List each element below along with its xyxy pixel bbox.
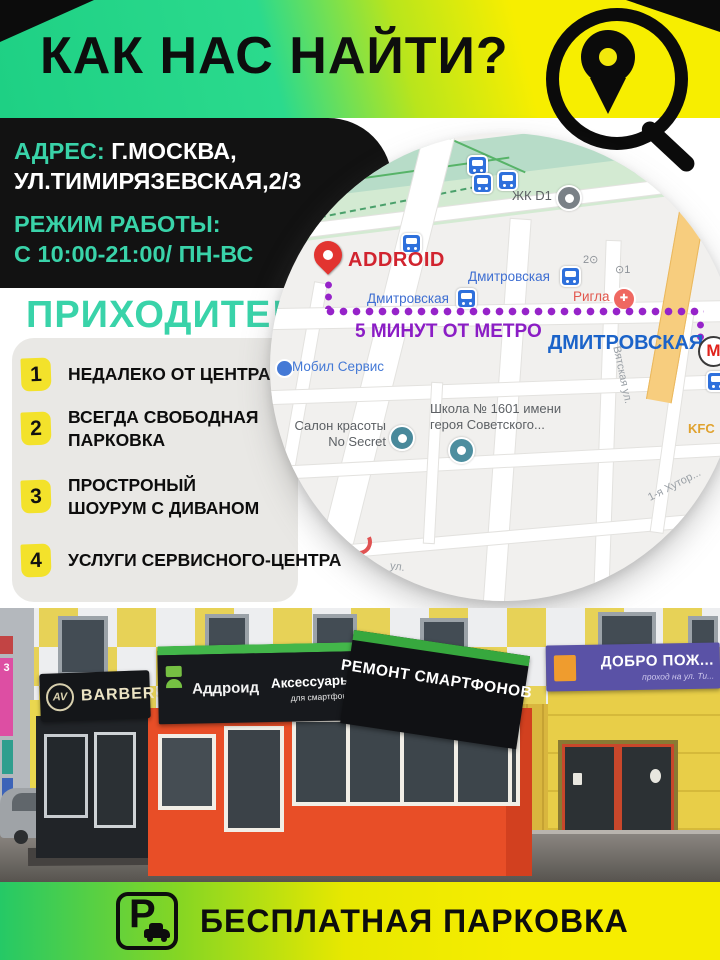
neighbor-sign: 3 — [0, 658, 13, 736]
benefit-item-1: 1 НЕДАЛЕКО ОТ ЦЕНТРА — [21, 358, 270, 391]
store-door — [224, 726, 284, 832]
benefit-number-badge: 3 — [20, 480, 51, 514]
benefit-item-2: 2 ВСЕГДА СВОБОДНАЯ ПАРКОВКА — [21, 406, 258, 452]
benefit-text: НЕДАЛЕКО ОТ ЦЕНТРА — [68, 363, 270, 386]
salon-label-line1: Салон красоты — [288, 418, 386, 433]
pharmacy-label: Ригла — [573, 289, 610, 304]
barbers-sign: AV BARBERS — [39, 670, 151, 722]
rail-station-label: Дмитровская — [367, 291, 449, 306]
street-label-khutor: 1-я Хутор... — [646, 467, 703, 504]
benefits-panel: 1 НЕДАЛЕКО ОТ ЦЕНТРА 2 ВСЕГДА СВОБОДНАЯ … — [12, 338, 298, 602]
benefit-text: ПРОСТРОНЫЙ ШОУРУМ С ДИВАНОМ — [68, 474, 259, 520]
bus-stop-icon — [472, 173, 493, 194]
benefit-number-badge: 2 — [20, 412, 51, 446]
school-label-line2: героя Советского... — [430, 417, 545, 432]
salon-label-line2: No Secret — [288, 434, 386, 449]
route-dots — [324, 307, 704, 316]
rail-station-label: Дмитровская — [468, 269, 550, 284]
metro-exit-1: ⊙1 — [615, 263, 630, 276]
footer-strip: P БЕСПЛАТНАЯ ПАРКОВКА — [0, 882, 720, 960]
neighbor-sign — [2, 740, 13, 774]
welcome-sign-text: ДОБРО ПОЖ... — [601, 651, 714, 670]
map-label-zhk: ЖК D1 — [512, 188, 552, 203]
store-window — [158, 734, 216, 810]
barbers-sign-text: BARBERS — [81, 684, 168, 705]
repair-sign-text: РЕМОНТ СМАРТФОНОВ — [340, 657, 533, 703]
train-station-icon — [560, 266, 581, 287]
building-poi-icon — [556, 185, 582, 211]
storefront-photo: 3 AV BARBERS Адд — [0, 608, 720, 882]
metro-station-name: ДМИТРОВСКАЯ — [548, 332, 703, 355]
benefit-number-badge: 4 — [20, 543, 51, 577]
kfc-label: KFC — [688, 421, 715, 436]
route-note: 5 МИНУТ ОТ МЕТРО — [355, 321, 542, 343]
barbers-storefront — [36, 716, 158, 858]
location-pin-tail — [590, 78, 626, 114]
map-circle: ЖК D1 2⊙ ⊙1 Дмитровская Дмитровская Ригл… — [270, 133, 720, 601]
barbers-door — [94, 732, 136, 828]
flyer-page: КАК НАС НАЙТИ? АДРЕС: Г.МОСКВА, УЛ.ТИМИР… — [0, 0, 720, 960]
school-label-line1: Школа № 1601 имени — [430, 401, 561, 416]
parking-icon: P — [116, 892, 178, 950]
benefit-item-3: 3 ПРОСТРОНЫЙ ШОУРУМ С ДИВАНОМ — [21, 474, 259, 520]
addroid-sign-name: Аддроид — [192, 679, 259, 697]
entrance-doors — [562, 744, 674, 838]
facade-window — [58, 616, 108, 676]
address-label: АДРЕС: — [14, 138, 105, 164]
barbers-window — [44, 734, 88, 818]
footer-text: БЕСПЛАТНАЯ ПАРКОВКА — [200, 903, 629, 940]
welcome-sign-subtext: проход на ул. Ти... — [642, 670, 714, 681]
mobil-service-label: Мобил Сервис — [292, 359, 384, 374]
benefit-text: ВСЕГДА СВОБОДНАЯ ПАРКОВКА — [68, 406, 258, 452]
address-city: Г.МОСКВА, — [111, 138, 236, 164]
street-label-ul: ул. — [389, 560, 405, 574]
building-entrance — [558, 740, 678, 842]
neighbor-sign — [0, 636, 13, 654]
store-map-pin — [308, 235, 348, 275]
android-robot-icon — [166, 678, 182, 700]
welcome-sign: ДОБРО ПОЖ... проход на ул. Ти... — [546, 642, 720, 691]
metro-exit-2: 2⊙ — [583, 253, 598, 266]
car-icon — [144, 929, 170, 938]
barbers-logo-icon: AV — [46, 683, 75, 712]
location-pin-hole — [599, 48, 617, 66]
store-map-label: ADDROID — [348, 249, 445, 272]
school-poi-icon — [448, 437, 475, 464]
benefit-number-badge: 1 — [20, 357, 51, 391]
train-station-icon — [456, 288, 477, 309]
bus-stop-icon — [706, 371, 720, 392]
route-dots — [324, 279, 333, 309]
welcome-sign-logo — [554, 655, 576, 681]
metro-logo-icon: М — [698, 336, 720, 367]
salon-poi-icon — [389, 425, 415, 451]
welcome-text-block: ДОБРО ПОЖ... проход на ул. Ти... — [586, 651, 714, 682]
page-title: КАК НАС НАЙТИ? — [40, 26, 509, 86]
invite-title: ПРИХОДИТЕ! — [26, 294, 285, 337]
